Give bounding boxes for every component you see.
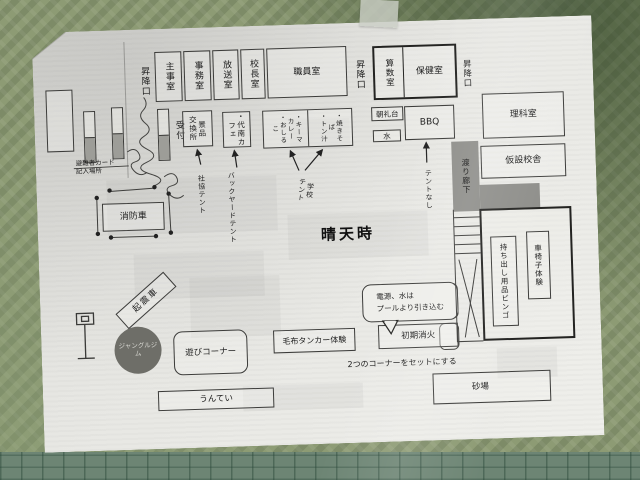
storage-shed [45, 90, 74, 153]
room-entrance-mid: 昇降口 [350, 52, 367, 96]
jungle-gym: ジャングルジム [114, 326, 162, 374]
corridor: 渡り廊下 [451, 141, 480, 212]
rack [111, 107, 125, 159]
bbq-area: BBQ [404, 105, 455, 141]
room-health: 保健室 [404, 65, 455, 77]
cafe-stall: ・代南カ フェ [222, 111, 251, 148]
fire-truck-area: 消防車 [102, 202, 165, 232]
map-title: 晴天時 [288, 221, 409, 247]
room-entrance-left: 昇降口 [135, 59, 152, 103]
food-stall-right: ・焼きそば ・トン汁 [308, 109, 353, 146]
room-math-health-block: 算数室 保健室 [372, 44, 458, 101]
set-note: 2つのコーナーをセットにする [297, 354, 507, 373]
card-entry-note: 避難者カード 記入場所 [75, 156, 130, 180]
bingo-corner: 持ち出し用品ビンゴ [490, 236, 519, 327]
rack [157, 109, 171, 161]
tent-label-none: テントなし [422, 165, 436, 213]
event-map-paper: 昇降口 主事室 事務室 放送室 校長室 職員室 昇降口 算数室 保健室 昇降口 … [32, 15, 605, 452]
room-office: 事務室 [183, 50, 212, 101]
basketball-hoop-icon [76, 313, 94, 359]
water-point: 水 [373, 129, 401, 142]
room-broadcast: 放送室 [212, 49, 240, 100]
room-caretaker: 主事室 [154, 51, 183, 102]
blanket-stretcher-corner: 毛布タンカー体験 [273, 328, 356, 354]
food-stall-left: ・キーマ カレー ・おしるこ [263, 110, 309, 147]
monkey-bars: うんてい [158, 387, 275, 411]
bleed-through [189, 275, 281, 338]
photo-of-event-map: { "map": { "title": "晴天時", "rooms": { "e… [0, 0, 640, 480]
assembly-platform: 朝礼台 [371, 106, 403, 121]
tent-label-shakyo: 社協テント [195, 165, 209, 223]
corner-fold-crease [32, 32, 67, 59]
room-principal: 校長室 [240, 49, 266, 100]
room-math: 算数室 [374, 47, 405, 98]
food-stall: ・キーマ カレー ・おしるこ ・焼きそば ・トン汁 [262, 108, 353, 149]
power-note-bubble: 電源、水は プールより引き込む [362, 282, 459, 323]
tent-label-backyard: バックヤードテント [225, 169, 239, 247]
window-sill-tiles [0, 452, 640, 480]
room-staff: 職員室 [266, 46, 348, 98]
play-corner: 遊びコーナー [173, 329, 248, 375]
prize-exchange-stall: 景品 交換所 [182, 110, 213, 147]
room-science: 理科室 [482, 91, 565, 139]
room-temp-building: 仮設校舎 [480, 143, 566, 179]
fire-extinguish-corner: 初期消火 [378, 323, 459, 350]
tent-label-school: 学校 テント [293, 171, 319, 209]
sandbox: 砂場 [432, 370, 551, 405]
room-entrance-right: 昇降口 [458, 53, 474, 93]
rack [83, 111, 97, 163]
tape-strip [359, 0, 398, 28]
wheelchair-corner: 車椅子体験 [526, 231, 551, 300]
